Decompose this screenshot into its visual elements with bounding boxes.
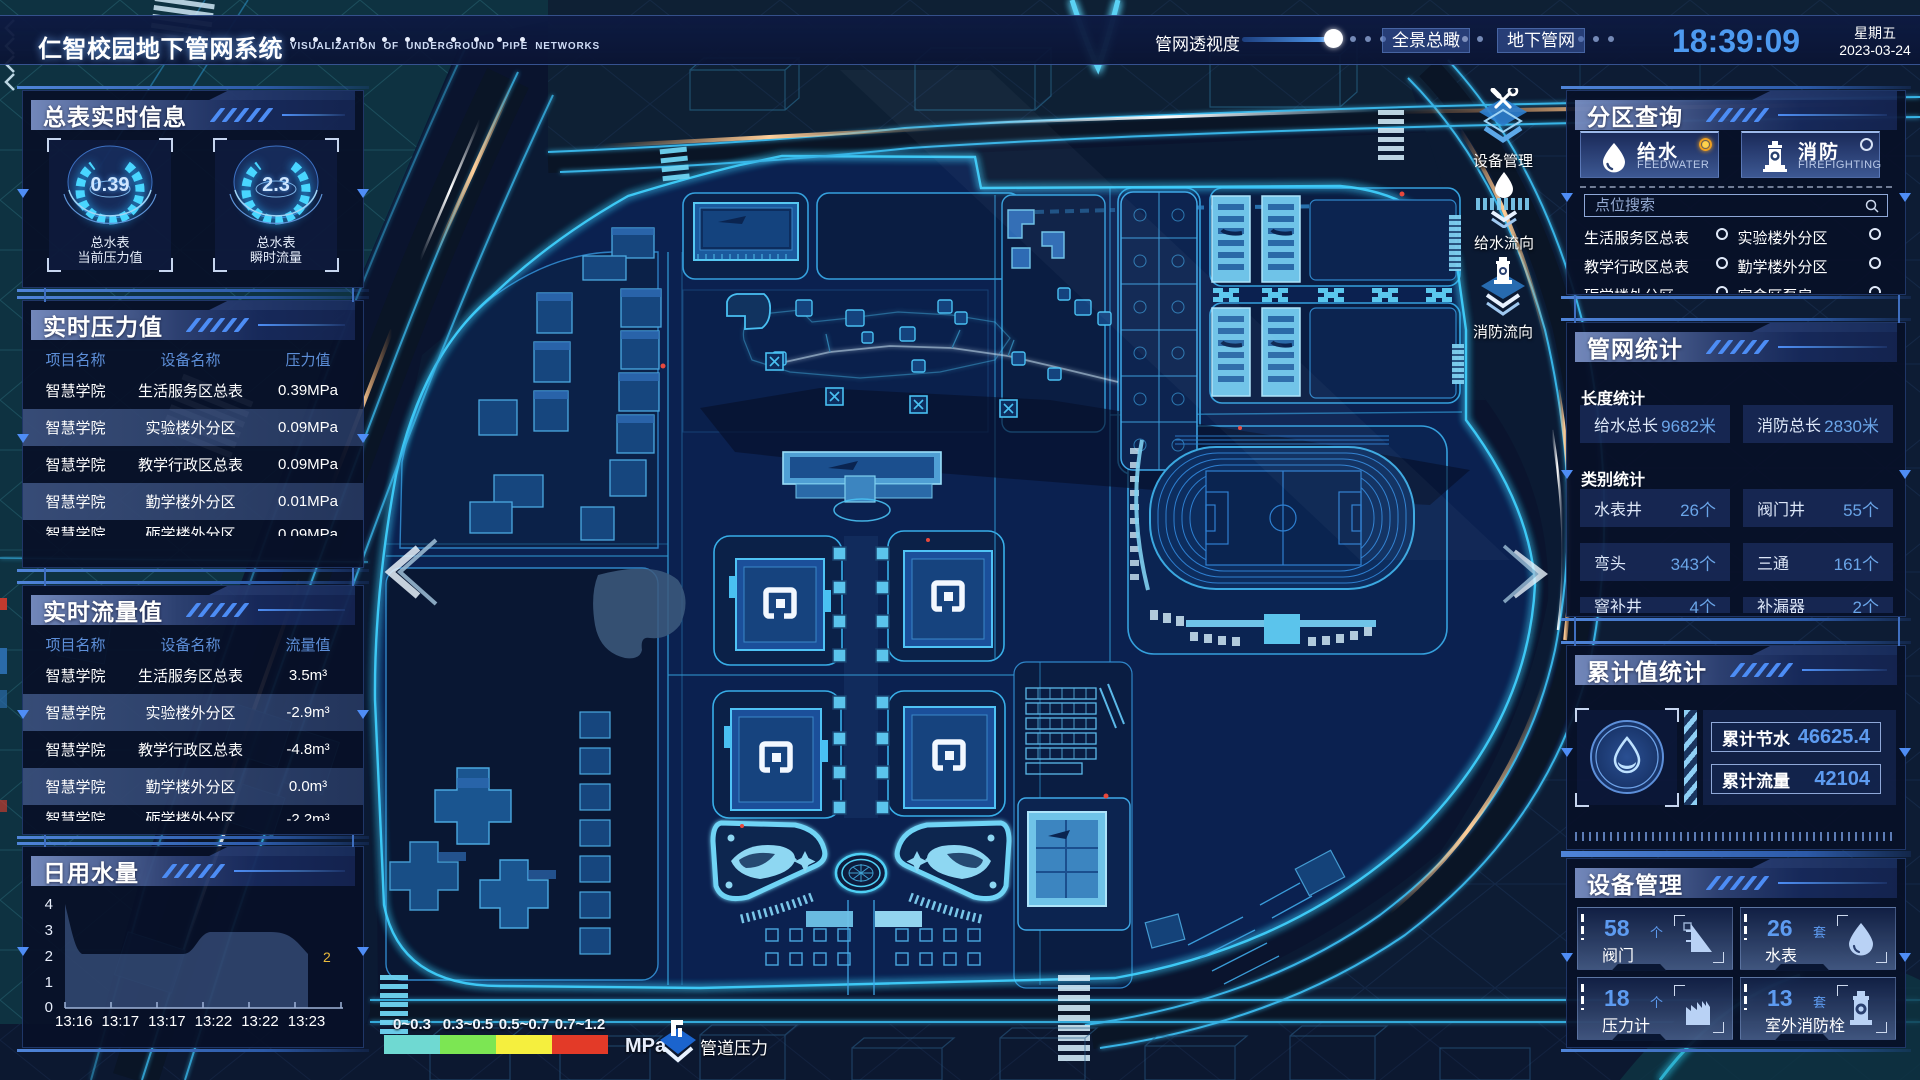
svg-text:4: 4 bbox=[45, 896, 53, 913]
svg-text:1: 1 bbox=[45, 974, 53, 991]
svg-text:2: 2 bbox=[45, 948, 53, 965]
svg-text:3: 3 bbox=[45, 922, 53, 939]
svg-text:0: 0 bbox=[45, 999, 53, 1012]
svg-text:2: 2 bbox=[323, 949, 331, 965]
